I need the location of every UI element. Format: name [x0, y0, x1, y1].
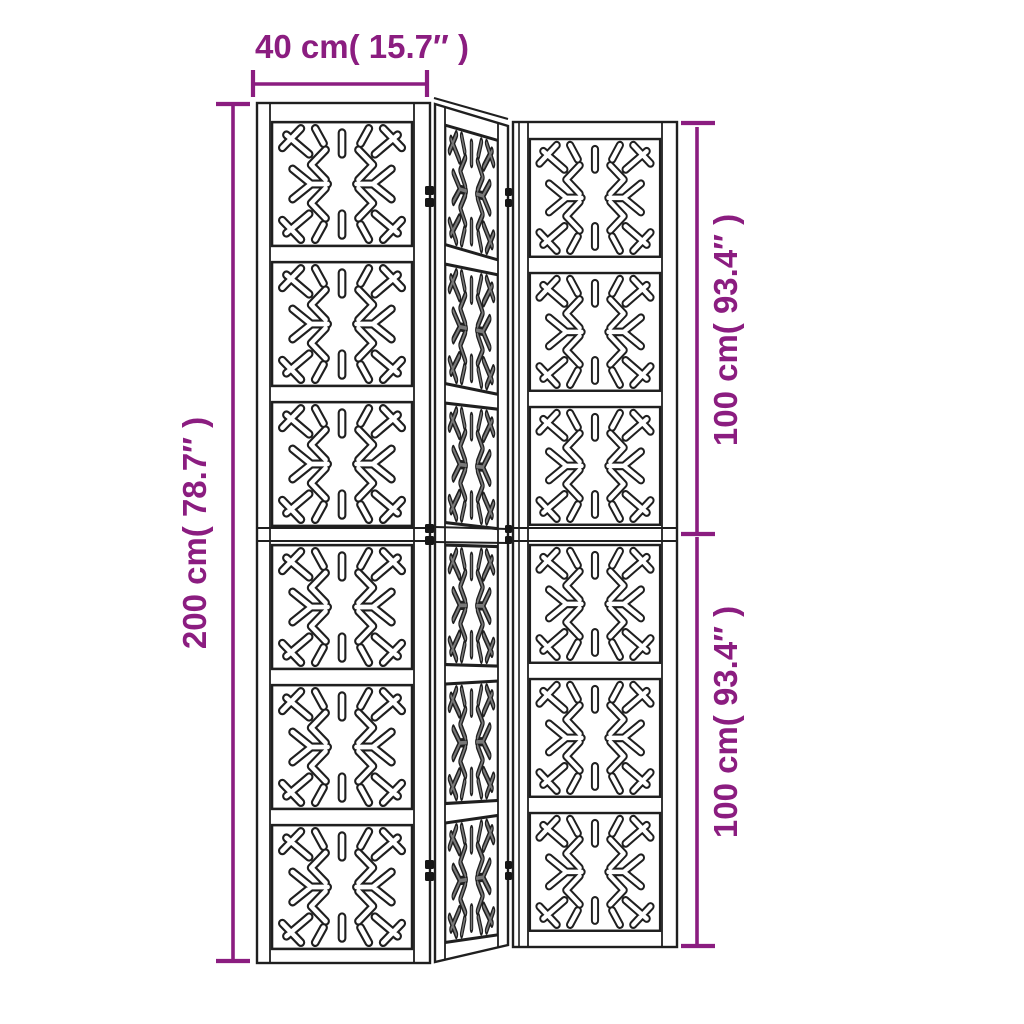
carved-block: [446, 815, 497, 942]
product-dimension-diagram: 40 cm( 15.7″ ) 200 cm( 78.7″ ) 100 cm( 9…: [0, 0, 1024, 1024]
carved-block: [530, 545, 660, 663]
carved-block: [272, 825, 412, 949]
center-panel: [425, 98, 512, 962]
carved-block: [530, 273, 660, 391]
right-panel: [513, 122, 677, 947]
carved-block: [530, 139, 660, 257]
width-dimension: [253, 70, 427, 97]
carved-block: [272, 122, 412, 246]
height-dimension-label: 200 cm( 78.7″ ): [176, 417, 213, 649]
carved-block: [446, 681, 497, 803]
carved-block: [272, 402, 412, 526]
left-panel: [257, 103, 430, 963]
carved-block: [530, 407, 660, 525]
diagram-canvas: 40 cm( 15.7″ ) 200 cm( 78.7″ ) 100 cm( 9…: [0, 0, 1024, 1024]
height-dimension: [216, 104, 250, 961]
carved-block: [446, 545, 497, 666]
carved-block: [272, 685, 412, 809]
lower-height-dimension-label: 100 cm( 93.4″ ): [707, 606, 744, 838]
upper-height-dimension-label: 100 cm( 93.4″ ): [707, 214, 744, 446]
carved-block: [446, 125, 497, 259]
carved-block: [530, 813, 660, 931]
carved-block: [446, 403, 497, 528]
carved-block: [272, 262, 412, 386]
width-dimension-label: 40 cm( 15.7″ ): [255, 28, 469, 65]
carved-block: [272, 545, 412, 669]
carved-block: [446, 264, 497, 394]
carved-block: [530, 679, 660, 797]
